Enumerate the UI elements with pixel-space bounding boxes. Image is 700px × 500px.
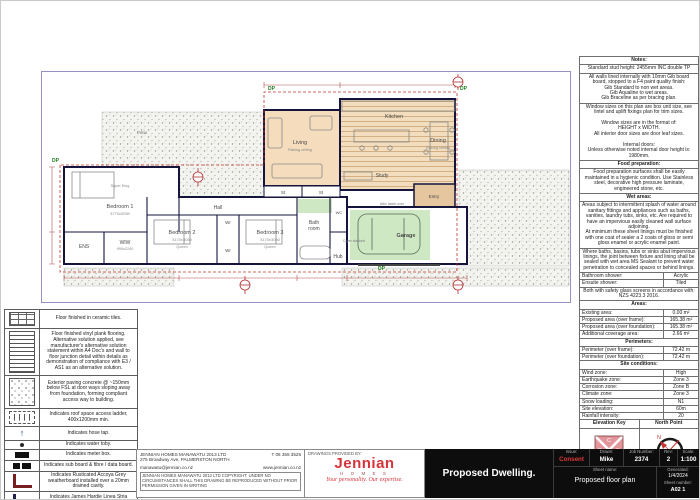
area-row: Existing area: 0.00 m² bbox=[579, 310, 699, 317]
perimeter-value: 72.42 m bbox=[663, 347, 698, 353]
legend-row: ↑ Indicates hose tap. bbox=[5, 426, 137, 440]
note-wet-areas-2: Where baths, basins, tubs or sinks abut … bbox=[579, 249, 699, 274]
notes-panel: Notes: Standard stud height: 2455mm INC … bbox=[579, 56, 699, 472]
driveway-paving-hatch bbox=[459, 170, 569, 266]
site-row: Climate zone:Zone 3 bbox=[579, 391, 699, 398]
floor-plan-svg: DP DP DP DP Patio Living Raking ceiling … bbox=[42, 72, 570, 302]
provider-copyright: JENNIAN HOMES MANAWATU 2013 LTD COPYRIGH… bbox=[140, 472, 301, 490]
provider-web[interactable]: www.jennian.co.nz bbox=[263, 465, 301, 470]
area-value: 2.66 m² bbox=[663, 331, 698, 337]
room-label-wr1: Wr bbox=[225, 220, 231, 225]
site-row: Corrosion zone:Zone B bbox=[579, 384, 699, 391]
sheet-name-cell: Sheet name: Proposed floor plan bbox=[554, 467, 657, 498]
site-label: Snow loading: bbox=[580, 399, 663, 405]
provider-logo-cell: DRAWINGS PROVIDED BY: Jennian H O M E S … bbox=[305, 450, 424, 497]
site-value: 60m bbox=[663, 406, 698, 412]
site-value: 20 bbox=[663, 413, 698, 419]
drawing-title: Proposed Dwelling. bbox=[425, 449, 554, 498]
room-label-bedroom1: Bedroom 1 bbox=[107, 204, 134, 210]
jennian-tagline: Your personality. Our expertise. bbox=[308, 477, 421, 483]
room-note-bed1: Super King bbox=[111, 184, 130, 188]
site-value: N1 bbox=[663, 399, 698, 405]
room-label-wc: WC bbox=[336, 210, 343, 215]
site-value: Zone B bbox=[663, 384, 698, 390]
room-note-dryer: Dryer stacked bbox=[343, 239, 365, 243]
jennian-logo-homes: H O M E S bbox=[308, 471, 421, 476]
linea-weatherboard-swatch bbox=[5, 492, 40, 500]
perimeters-title: Perimeters: bbox=[579, 339, 699, 347]
hose-tap-icon: ↑ bbox=[5, 427, 40, 440]
room-label-st2: St bbox=[319, 190, 324, 195]
room-label-wr2: Wr bbox=[225, 248, 231, 253]
concrete-paving-swatch bbox=[5, 376, 40, 408]
legend-text: Indicates meter box. bbox=[40, 451, 137, 459]
legend-panel: Floor finished in ceramic tiles. Floor f… bbox=[4, 309, 138, 500]
legend-text: Indicates roof space access ladder, 400x… bbox=[40, 411, 137, 424]
room-label-hall: Hall bbox=[214, 205, 223, 211]
title-block: Proposed Dwelling. Issue: Consent Drawn:… bbox=[425, 449, 699, 498]
legend-row: Indicates sub board & fibre / data board… bbox=[5, 460, 137, 471]
dp-label-2: DP bbox=[52, 158, 60, 164]
room-note-bed2: Queen bbox=[176, 245, 187, 249]
legend-row: Indicates James Hardie Linea Stria weath… bbox=[5, 491, 137, 500]
issue-cell: Issue: Consent bbox=[554, 449, 590, 466]
legend-text: Floor finished vinyl plank flooring. Alt… bbox=[40, 331, 137, 372]
sheet-name-value: Proposed floor plan bbox=[575, 473, 636, 489]
legend-text: Indicates water toby. bbox=[40, 441, 137, 449]
areas-title: Areas: bbox=[579, 301, 699, 309]
area-row: Proposed area (over frame): 165.38 m² bbox=[579, 317, 699, 324]
kitchen-dining-floor bbox=[340, 99, 455, 190]
food-prep-title: Food preparation: bbox=[579, 161, 699, 169]
room-label-hub: Hub bbox=[333, 254, 342, 260]
provider-contact: JENNIAN HOMES MANAWATU 2013 LTD T 06 355… bbox=[137, 450, 305, 497]
wet-areas-title: Wet areas: bbox=[579, 194, 699, 202]
title-block-grid: Issue: Consent Drawn: Mike Job Number: 2… bbox=[554, 449, 699, 498]
legend-text: Indicates James Hardie Linea Stria weath… bbox=[40, 494, 137, 500]
perimeter-label: Perimeter (over foundation): bbox=[580, 354, 663, 360]
room-label-bedroom2: Bedroom 2 bbox=[169, 230, 196, 236]
ensuite-shower-value: Tiled bbox=[663, 280, 698, 286]
site-label: Corrosion zone: bbox=[580, 384, 663, 390]
room-label-patio: Patio bbox=[137, 130, 148, 135]
issue-value: Consent bbox=[559, 455, 584, 464]
room-label-entry: Entry bbox=[429, 194, 440, 199]
perimeter-value: 72.42 m bbox=[663, 354, 698, 360]
note-windows: Window sizes on this plan are box unit s… bbox=[579, 104, 699, 161]
notes-title: Notes: bbox=[579, 56, 699, 65]
note-wet-areas-1: Areas subject to intermittent splash of … bbox=[579, 202, 699, 248]
site-value: Zone 3 bbox=[663, 391, 698, 397]
sheet-number-value: A02 1 bbox=[671, 486, 686, 495]
provider-email[interactable]: manawatu@jennian.co.nz bbox=[140, 465, 193, 470]
bathroom-shower-row: Bathroom shower: Acrylic bbox=[579, 273, 699, 280]
dp-label-3: DP bbox=[378, 266, 386, 272]
room-note-bed3: Queen bbox=[264, 245, 275, 249]
area-value: 165.38 m² bbox=[663, 324, 698, 330]
roof-ladder-icon bbox=[5, 409, 40, 426]
room-note-living: Raking ceiling bbox=[288, 148, 312, 152]
dp-label-1: DP bbox=[268, 86, 276, 92]
bathroom-shower-value: Acrylic bbox=[663, 273, 698, 279]
room-label-garage: Garage bbox=[397, 233, 416, 239]
rev-value: 2 bbox=[667, 455, 670, 464]
bathroom-green-zone bbox=[298, 199, 332, 213]
note-food-prep: Food preparation surfaces shall be easil… bbox=[579, 169, 699, 194]
north-point-title: North Point bbox=[639, 420, 699, 427]
meter-box-icon bbox=[5, 450, 40, 460]
legend-row: Exterior paving concrete @ ~150mm below … bbox=[5, 375, 137, 408]
room-label-study: Study bbox=[376, 173, 389, 179]
dp-label-4: DP bbox=[460, 86, 468, 92]
legend-row: Indicates roof space access ladder, 400x… bbox=[5, 408, 137, 426]
room-label-st1: St bbox=[281, 190, 286, 195]
generated-value: 1/4/2024 bbox=[668, 473, 687, 480]
floor-plan-panel: DP DP DP DP Patio Living Raking ceiling … bbox=[41, 71, 571, 303]
legend-text: Indicates sub board & fibre / data board… bbox=[40, 462, 137, 470]
room-size-wiw: 990x2240 bbox=[117, 247, 134, 251]
job-number-value: 2374 bbox=[635, 455, 649, 464]
perimeter-row: Perimeter (over frame): 72.42 m bbox=[579, 347, 699, 354]
scale-cell: Scale: 1:100 bbox=[678, 449, 699, 466]
generated-cell: Generated: 1/4/2024 Sheet number: A02 1 bbox=[657, 467, 699, 498]
area-label: Additional coverage area: bbox=[580, 331, 663, 337]
room-size-bedroom1: 3770x3050 bbox=[110, 211, 131, 216]
ensuite-shower-label: Ensuite shower: bbox=[580, 280, 663, 286]
site-row: Site elevation:60m bbox=[579, 406, 699, 413]
area-value: 165.38 m² bbox=[663, 317, 698, 323]
drawn-value: Mike bbox=[600, 455, 614, 464]
legend-text: Indicates Rusticated Accoya Grey weather… bbox=[40, 472, 137, 491]
site-value: Zone 3 bbox=[663, 377, 698, 383]
area-label: Proposed area (over frame): bbox=[580, 317, 663, 323]
elevation-key-title: Elevation Key bbox=[580, 420, 639, 427]
room-label-dining: Dining bbox=[430, 138, 446, 144]
provider-address: 275 Broadway Ave, PALMERSTON NORTH bbox=[140, 457, 301, 462]
note-safety-glass: Both with safety glass screens in accord… bbox=[579, 288, 699, 302]
elevation-letter-c: C bbox=[607, 438, 611, 444]
legend-text: Floor finished in ceramic tiles. bbox=[40, 315, 137, 323]
site-row: Wind zone:High bbox=[579, 370, 699, 377]
area-label: Existing area: bbox=[580, 310, 663, 316]
site-conditions-title: Site conditions: bbox=[579, 361, 699, 369]
perimeter-label: Perimeter (over frame): bbox=[580, 347, 663, 353]
legend-row: Indicates meter box. bbox=[5, 449, 137, 460]
area-value: 0.00 m² bbox=[663, 310, 698, 316]
legend-row: Indicates water toby. bbox=[5, 440, 137, 449]
vinyl-plank-swatch bbox=[5, 329, 40, 375]
room-label-kitchen: Kitchen bbox=[385, 114, 403, 120]
room-note-attic: Attic hatch over bbox=[380, 202, 405, 206]
accoya-weatherboard-swatch bbox=[5, 472, 40, 491]
elevation-north-header: Elevation Key North Point bbox=[579, 420, 699, 428]
north-n-label: N bbox=[657, 435, 661, 441]
perimeter-row: Perimeter (over foundation): 72.42 m bbox=[579, 354, 699, 361]
paving-strip-left bbox=[64, 268, 174, 286]
legend-row: Floor finished in ceramic tiles. bbox=[5, 310, 137, 328]
water-toby-icon bbox=[5, 441, 40, 449]
ceramic-tile-swatch bbox=[5, 310, 40, 328]
site-label: Site elevation: bbox=[580, 406, 663, 412]
provider-block: JENNIAN HOMES MANAWATU 2013 LTD T 06 355… bbox=[136, 449, 425, 498]
legend-text: Indicates hose tap. bbox=[40, 430, 137, 438]
site-label: Rainfall intensity: bbox=[580, 413, 663, 419]
room-label-bath2: room bbox=[308, 226, 319, 232]
room-label-living: Living bbox=[293, 140, 307, 146]
area-row: Proposed area (over foundation): 165.38 … bbox=[579, 324, 699, 331]
room-label-wiw: WIW bbox=[120, 240, 131, 246]
room-label-ens: ENS bbox=[79, 244, 90, 250]
provider-phone: T 06 355 3525 bbox=[271, 452, 301, 457]
site-row: Rainfall intensity:20 bbox=[579, 413, 699, 420]
note-stud-height: Standard stud height: 2455mm INC double … bbox=[579, 65, 699, 73]
room-size-bedroom3: 3170x3050 bbox=[260, 237, 281, 242]
note-gib: All walls lined internally with 10mm Gib… bbox=[579, 74, 699, 104]
scale-value: 1:100 bbox=[681, 455, 697, 464]
site-label: Wind zone: bbox=[580, 370, 663, 376]
area-label: Proposed area (over foundation): bbox=[580, 324, 663, 330]
jennian-logo: Jennian H O M E S Your personality. Our … bbox=[308, 457, 421, 483]
jennian-logo-text: Jennian bbox=[308, 457, 421, 471]
legend-row: Floor finished vinyl plank flooring. Alt… bbox=[5, 328, 137, 375]
bathroom-shower-label: Bathroom shower: bbox=[580, 273, 663, 279]
drawn-cell: Drawn: Mike bbox=[590, 449, 624, 466]
room-label-bedroom3: Bedroom 3 bbox=[257, 230, 284, 236]
legend-text: Exterior paving concrete @ ~150mm below … bbox=[40, 380, 137, 404]
site-row: Snow loading:N1 bbox=[579, 399, 699, 406]
site-value: High bbox=[663, 370, 698, 376]
area-row: Additional coverage area: 2.66 m² bbox=[579, 331, 699, 338]
ensuite-shower-row: Ensuite shower: Tiled bbox=[579, 280, 699, 287]
room-size-bedroom2: 3170x3050 bbox=[172, 237, 193, 242]
rev-cell: Rev: 2 bbox=[660, 449, 678, 466]
site-label: Earthquake zone: bbox=[580, 377, 663, 383]
site-label: Climate zone: bbox=[580, 391, 663, 397]
legend-row: Indicates Rusticated Accoya Grey weather… bbox=[5, 471, 137, 491]
site-row: Earthquake zone:Zone 3 bbox=[579, 377, 699, 384]
job-number-cell: Job Number: 2374 bbox=[624, 449, 660, 466]
sub-board-icon bbox=[5, 461, 40, 471]
drawing-sheet: DP DP DP DP Patio Living Raking ceiling … bbox=[0, 0, 700, 500]
room-note-dining: Raking ceiling bbox=[426, 146, 450, 150]
